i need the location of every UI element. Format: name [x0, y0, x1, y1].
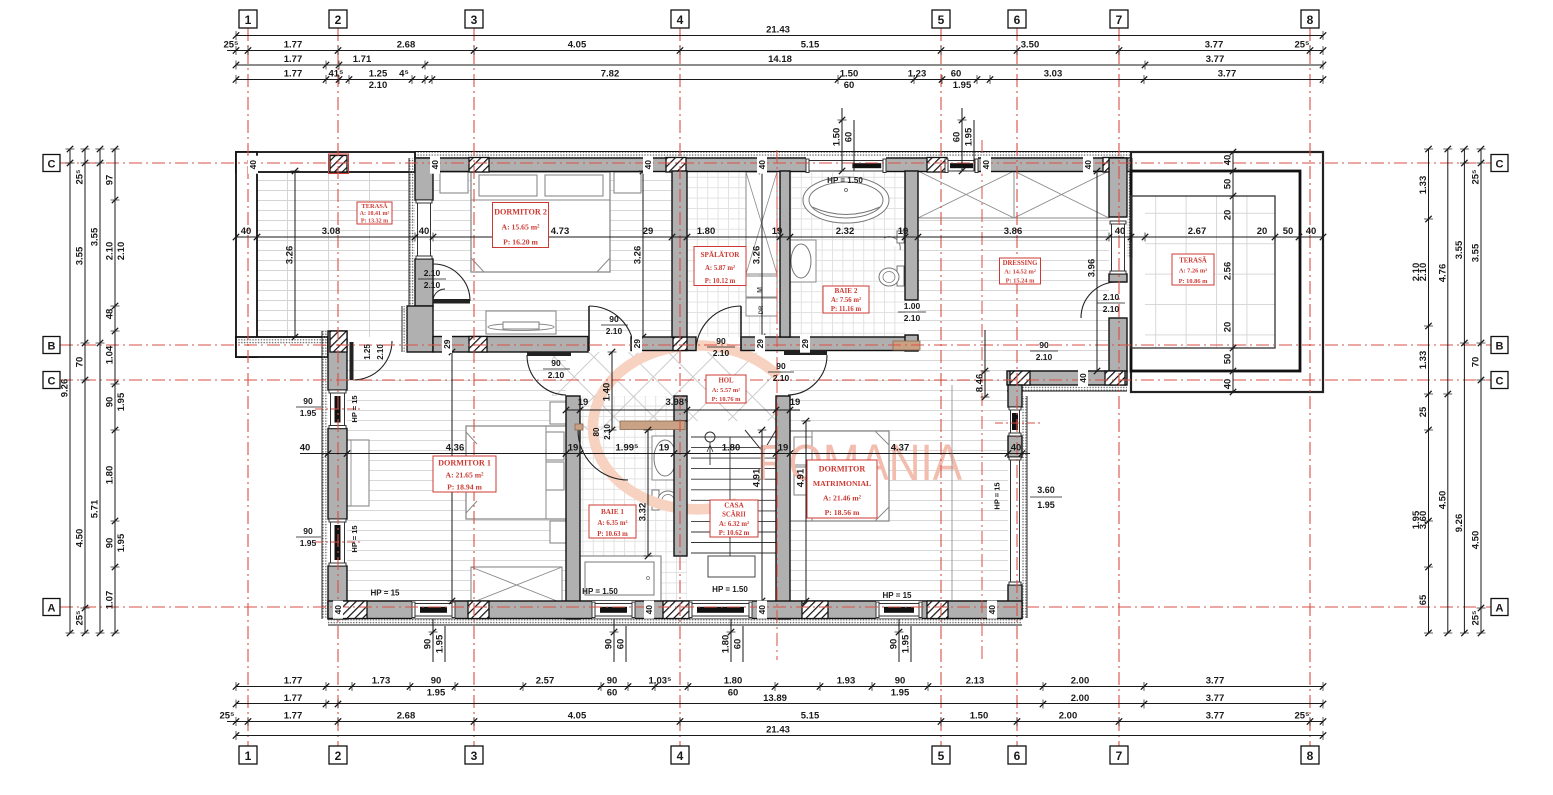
svg-text:1.03⁵: 1.03⁵ [649, 676, 672, 687]
svg-text:A: 14.52 m²: A: 14.52 m² [1004, 269, 1036, 276]
svg-text:2.10: 2.10 [116, 242, 127, 261]
svg-text:6: 6 [1014, 749, 1021, 763]
svg-text:40: 40 [1011, 443, 1022, 454]
svg-text:2.00: 2.00 [1059, 711, 1078, 722]
svg-text:40: 40 [1115, 226, 1126, 237]
svg-text:2.10: 2.10 [548, 370, 565, 380]
svg-text:90: 90 [604, 639, 615, 650]
svg-text:90: 90 [776, 361, 786, 371]
svg-text:90: 90 [105, 397, 116, 408]
svg-text:3: 3 [471, 13, 478, 27]
svg-text:P: 10.62 m: P: 10.62 m [719, 530, 750, 537]
svg-text:40: 40 [987, 605, 997, 615]
svg-text:50: 50 [1283, 226, 1294, 237]
svg-text:2.32: 2.32 [836, 226, 855, 237]
svg-text:A: 6.35 m²: A: 6.35 m² [598, 520, 628, 527]
svg-text:1.95: 1.95 [300, 408, 317, 418]
svg-text:60: 60 [844, 80, 855, 91]
svg-text:2.10: 2.10 [1036, 352, 1053, 362]
svg-text:A: 15.65 m²: A: 15.65 m² [502, 223, 541, 232]
svg-text:4⁵: 4⁵ [399, 69, 409, 80]
svg-text:40: 40 [241, 226, 252, 237]
svg-text:2.10: 2.10 [713, 348, 730, 358]
svg-text:9.26: 9.26 [1454, 514, 1465, 533]
svg-text:1.77: 1.77 [284, 711, 303, 722]
svg-text:90: 90 [895, 676, 906, 687]
svg-text:90: 90 [607, 676, 618, 687]
svg-text:90: 90 [716, 336, 726, 346]
svg-text:1.23: 1.23 [908, 69, 927, 80]
svg-text:A: 5.57 m²: A: 5.57 m² [712, 387, 740, 394]
svg-text:3.26: 3.26 [285, 246, 296, 265]
svg-text:60: 60 [728, 688, 739, 699]
svg-text:3.50: 3.50 [1021, 40, 1040, 51]
svg-text:90: 90 [303, 396, 313, 406]
svg-text:4.73: 4.73 [551, 226, 570, 237]
svg-text:90: 90 [423, 639, 434, 650]
svg-text:40: 40 [419, 226, 430, 237]
svg-text:60: 60 [733, 639, 744, 650]
svg-text:40: 40 [644, 605, 654, 615]
svg-text:SPĂLĂTOR: SPĂLĂTOR [700, 249, 740, 259]
svg-text:25⁵: 25⁵ [219, 711, 234, 722]
svg-text:MATRIMONIAL: MATRIMONIAL [813, 479, 871, 488]
svg-text:50: 50 [1223, 354, 1234, 365]
svg-text:3.55: 3.55 [1454, 240, 1465, 259]
svg-text:1.04: 1.04 [105, 345, 116, 364]
svg-text:90: 90 [889, 639, 900, 650]
svg-text:4: 4 [677, 749, 684, 763]
svg-text:1.95: 1.95 [1037, 500, 1055, 510]
svg-text:90: 90 [551, 358, 561, 368]
svg-text:80: 80 [592, 427, 601, 436]
svg-text:40: 40 [1223, 379, 1234, 390]
svg-text:3.77: 3.77 [1206, 676, 1225, 687]
svg-text:90: 90 [303, 526, 313, 536]
svg-text:3.96: 3.96 [1087, 259, 1098, 278]
svg-text:A: 7.26 m²: A: 7.26 m² [1179, 268, 1207, 275]
svg-text:1.73: 1.73 [372, 676, 391, 687]
svg-text:1.95: 1.95 [1411, 510, 1422, 529]
svg-text:DORMITOR 2: DORMITOR 2 [494, 208, 547, 217]
svg-text:20: 20 [1257, 226, 1268, 237]
svg-text:P: 13.32 m: P: 13.32 m [361, 219, 388, 225]
svg-text:20: 20 [1223, 322, 1234, 333]
svg-text:1.80: 1.80 [697, 226, 716, 237]
svg-text:1.07: 1.07 [105, 591, 116, 610]
svg-text:A: 21.65 m²: A: 21.65 m² [446, 471, 485, 480]
svg-text:40: 40 [333, 605, 343, 615]
svg-text:1.71: 1.71 [353, 54, 372, 65]
svg-text:DORMITOR: DORMITOR [819, 465, 866, 474]
svg-text:3.77: 3.77 [1205, 40, 1224, 51]
svg-text:1.99⁵: 1.99⁵ [616, 443, 639, 454]
svg-text:19: 19 [659, 443, 670, 454]
svg-text:1.40: 1.40 [602, 383, 613, 402]
svg-text:1.00: 1.00 [904, 301, 921, 311]
svg-text:40: 40 [1083, 160, 1093, 170]
svg-text:1.77: 1.77 [284, 693, 303, 704]
svg-text:BAIE 2: BAIE 2 [835, 287, 858, 295]
svg-text:A: 10.41 m²: A: 10.41 m² [360, 211, 390, 217]
svg-text:A: 6.32 m²: A: 6.32 m² [719, 521, 749, 528]
svg-text:HP = 15: HP = 15 [371, 589, 401, 598]
svg-text:4.50: 4.50 [75, 529, 86, 548]
svg-text:C: C [1496, 376, 1504, 388]
svg-text:8: 8 [1307, 749, 1314, 763]
svg-text:P: 10.76 m: P: 10.76 m [712, 396, 742, 403]
svg-text:8.46: 8.46 [975, 374, 986, 393]
svg-text:4: 4 [677, 13, 684, 27]
svg-text:1.80: 1.80 [722, 443, 741, 454]
svg-text:1.95: 1.95 [116, 392, 127, 411]
svg-text:25⁵: 25⁵ [75, 610, 86, 625]
svg-text:19: 19 [778, 443, 789, 454]
svg-text:3.55: 3.55 [90, 227, 101, 246]
svg-text:40: 40 [981, 160, 991, 170]
svg-text:40: 40 [300, 443, 311, 454]
svg-text:25⁵: 25⁵ [223, 40, 238, 51]
svg-text:5.15: 5.15 [801, 711, 820, 722]
svg-text:3.77: 3.77 [1218, 69, 1237, 80]
svg-text:25: 25 [1418, 406, 1429, 417]
svg-text:2.10: 2.10 [904, 313, 921, 323]
svg-text:2.56: 2.56 [1223, 262, 1234, 281]
svg-text:70: 70 [75, 357, 86, 368]
svg-text:1.77: 1.77 [284, 69, 303, 80]
svg-text:2.68: 2.68 [397, 711, 416, 722]
svg-text:4.91: 4.91 [752, 468, 763, 487]
svg-text:13.89: 13.89 [763, 693, 787, 704]
svg-text:6: 6 [1014, 13, 1021, 27]
svg-text:3.60: 3.60 [1037, 485, 1055, 495]
svg-text:7.82: 7.82 [601, 69, 620, 80]
svg-text:40: 40 [1306, 226, 1317, 237]
svg-text:3.26: 3.26 [752, 246, 763, 265]
svg-text:97: 97 [105, 175, 116, 186]
svg-text:25⁵: 25⁵ [75, 169, 86, 184]
svg-text:1.25: 1.25 [369, 69, 388, 80]
svg-text:29: 29 [643, 226, 654, 237]
svg-text:90: 90 [431, 676, 442, 687]
svg-text:5: 5 [938, 13, 945, 27]
svg-text:19: 19 [578, 397, 589, 408]
svg-text:CASA: CASA [724, 501, 744, 509]
svg-text:5.15: 5.15 [801, 40, 820, 51]
svg-text:70: 70 [1471, 357, 1482, 368]
svg-text:2.10: 2.10 [369, 80, 388, 91]
svg-text:4.37: 4.37 [891, 443, 910, 454]
svg-text:P: 10.63 m: P: 10.63 m [597, 531, 628, 538]
svg-text:A: 7.56 m²: A: 7.56 m² [831, 297, 861, 304]
svg-text:21.43: 21.43 [766, 25, 790, 36]
svg-text:4.50: 4.50 [1471, 531, 1482, 550]
svg-text:1.95: 1.95 [901, 634, 912, 653]
svg-text:60: 60 [607, 688, 618, 699]
svg-text:HP = 15: HP = 15 [350, 395, 359, 422]
svg-text:1.33: 1.33 [1418, 351, 1429, 370]
svg-text:A: 5.87 m²: A: 5.87 m² [705, 265, 735, 272]
svg-text:1: 1 [245, 13, 252, 27]
svg-text:7: 7 [1116, 749, 1123, 763]
svg-text:SCĂRII: SCĂRII [722, 511, 746, 519]
svg-text:1.33: 1.33 [1418, 176, 1429, 195]
svg-text:40: 40 [248, 160, 258, 170]
svg-text:P: 11.16 m: P: 11.16 m [831, 306, 862, 313]
svg-text:3.77: 3.77 [1206, 54, 1225, 65]
svg-text:1.77: 1.77 [284, 54, 303, 65]
svg-text:P: 18.56 m: P: 18.56 m [825, 508, 860, 517]
svg-text:2: 2 [335, 13, 342, 27]
svg-text:TERASĂ: TERASĂ [1179, 256, 1207, 264]
svg-text:4.91: 4.91 [796, 468, 807, 487]
svg-text:P: 15.24 m: P: 15.24 m [1006, 277, 1036, 284]
svg-text:19: 19 [568, 443, 579, 454]
svg-text:48: 48 [105, 309, 116, 320]
svg-text:1.50: 1.50 [970, 711, 989, 722]
svg-text:3: 3 [471, 749, 478, 763]
svg-text:5: 5 [938, 749, 945, 763]
svg-text:2.68: 2.68 [397, 40, 416, 51]
svg-text:9.26: 9.26 [60, 379, 71, 398]
svg-text:DRESSING: DRESSING [1003, 260, 1038, 267]
svg-text:HOL: HOL [718, 378, 734, 385]
svg-text:2.67: 2.67 [1188, 226, 1207, 237]
svg-text:2.13: 2.13 [966, 676, 985, 687]
svg-text:2.10: 2.10 [105, 242, 116, 261]
svg-text:2.10: 2.10 [773, 373, 790, 383]
svg-text:60: 60 [951, 69, 962, 80]
svg-text:29: 29 [755, 339, 765, 349]
svg-text:2.10: 2.10 [1103, 292, 1120, 302]
svg-text:P: 10.12 m: P: 10.12 m [705, 278, 736, 285]
svg-text:20: 20 [1223, 210, 1234, 221]
svg-text:C: C [1496, 159, 1504, 171]
svg-text:1.95: 1.95 [953, 80, 972, 91]
svg-text:25⁵: 25⁵ [1294, 711, 1309, 722]
svg-text:60: 60 [844, 132, 855, 143]
svg-text:A: A [48, 603, 56, 615]
svg-text:2.10: 2.10 [424, 268, 441, 278]
svg-text:7: 7 [1116, 13, 1123, 27]
svg-text:1.25: 1.25 [363, 344, 372, 360]
svg-text:3.86: 3.86 [1004, 226, 1023, 237]
svg-text:90: 90 [609, 314, 619, 324]
svg-text:60: 60 [952, 132, 963, 143]
svg-text:2.10: 2.10 [1103, 304, 1120, 314]
svg-text:40: 40 [1078, 373, 1088, 383]
svg-text:1.80: 1.80 [105, 466, 116, 485]
svg-text:29: 29 [800, 339, 810, 349]
svg-text:40: 40 [1223, 155, 1234, 166]
svg-text:3.98⁵: 3.98⁵ [666, 397, 689, 408]
svg-text:3.55: 3.55 [1471, 243, 1482, 262]
svg-text:90: 90 [1039, 340, 1049, 350]
svg-text:3.08: 3.08 [322, 226, 341, 237]
svg-text:1.95: 1.95 [427, 688, 446, 699]
svg-text:29: 29 [632, 339, 642, 349]
svg-text:3.26: 3.26 [633, 246, 644, 265]
svg-text:25⁵: 25⁵ [1471, 169, 1482, 184]
svg-text:P: 16.20 m: P: 16.20 m [503, 238, 538, 247]
svg-text:HP = 15: HP = 15 [883, 591, 913, 600]
svg-text:60: 60 [616, 639, 627, 650]
svg-text:3.77: 3.77 [1206, 693, 1225, 704]
svg-text:4.50: 4.50 [1437, 491, 1448, 510]
svg-text:1.95: 1.95 [300, 538, 317, 548]
svg-text:3.32: 3.32 [638, 503, 649, 522]
svg-text:M: M [757, 287, 764, 293]
svg-text:4.36: 4.36 [446, 443, 465, 454]
svg-text:HP = 1.50: HP = 1.50 [827, 176, 863, 185]
svg-text:40: 40 [757, 160, 767, 170]
svg-text:A: A [1496, 603, 1504, 615]
svg-text:1.95: 1.95 [435, 634, 446, 653]
svg-text:HP = 1.50: HP = 1.50 [582, 587, 618, 596]
svg-text:3.77: 3.77 [1206, 711, 1225, 722]
svg-text:25⁵: 25⁵ [1294, 40, 1309, 51]
svg-text:1.50: 1.50 [832, 128, 843, 147]
svg-text:1: 1 [245, 749, 252, 763]
svg-text:1.95: 1.95 [891, 688, 910, 699]
svg-text:2.10: 2.10 [1411, 263, 1422, 282]
svg-text:5.71: 5.71 [90, 499, 101, 518]
svg-text:4.05: 4.05 [568, 711, 587, 722]
svg-text:HP = 15: HP = 15 [350, 525, 359, 552]
svg-text:50: 50 [1223, 179, 1234, 190]
svg-text:1.95: 1.95 [116, 533, 127, 552]
svg-text:65: 65 [1418, 594, 1429, 605]
svg-text:25⁵: 25⁵ [1471, 610, 1482, 625]
svg-text:21.43: 21.43 [766, 725, 790, 736]
svg-text:C: C [48, 376, 56, 388]
svg-text:8: 8 [1307, 13, 1314, 27]
svg-text:P: 10.86 m: P: 10.86 m [1179, 278, 1209, 285]
svg-text:2.10: 2.10 [606, 326, 623, 336]
svg-text:HP = 1.50: HP = 1.50 [712, 585, 748, 594]
svg-text:2.57: 2.57 [536, 676, 555, 687]
svg-text:2.00: 2.00 [1071, 676, 1090, 687]
svg-text:B: B [1496, 341, 1504, 353]
svg-text:2.00: 2.00 [1071, 693, 1090, 704]
svg-text:29: 29 [442, 339, 452, 349]
svg-text:4.05: 4.05 [568, 40, 587, 51]
svg-text:3.55: 3.55 [75, 246, 86, 265]
svg-text:TERASĂ: TERASĂ [362, 202, 388, 210]
svg-text:P: 18.94 m: P: 18.94 m [447, 483, 482, 492]
svg-text:BAIE 1: BAIE 1 [601, 508, 624, 516]
svg-text:2.10: 2.10 [376, 344, 385, 360]
svg-text:1.77: 1.77 [284, 40, 303, 51]
svg-text:C: C [48, 159, 56, 171]
svg-text:1.93: 1.93 [837, 676, 856, 687]
svg-text:19: 19 [790, 397, 801, 408]
svg-text:1.77: 1.77 [284, 676, 303, 687]
svg-text:19: 19 [898, 226, 909, 237]
svg-text:B: B [48, 341, 56, 353]
svg-text:A: 21.46 m²: A: 21.46 m² [823, 494, 862, 503]
svg-text:1.80: 1.80 [721, 635, 732, 654]
svg-text:1.50: 1.50 [840, 69, 859, 80]
svg-text:40: 40 [757, 605, 767, 615]
svg-text:1.80: 1.80 [724, 676, 743, 687]
svg-text:40: 40 [430, 160, 440, 170]
svg-text:41⁵: 41⁵ [328, 69, 343, 80]
svg-text:DORMITOR 1: DORMITOR 1 [438, 459, 491, 468]
svg-text:2.10: 2.10 [424, 280, 441, 290]
svg-text:40: 40 [643, 160, 653, 170]
svg-text:90: 90 [105, 538, 116, 549]
svg-text:19: 19 [772, 226, 783, 237]
svg-text:2: 2 [335, 749, 342, 763]
svg-text:1.95: 1.95 [964, 127, 975, 146]
svg-text:HP = 15: HP = 15 [993, 482, 1002, 509]
svg-text:4.76: 4.76 [1437, 264, 1448, 283]
svg-text:3.03: 3.03 [1044, 69, 1063, 80]
svg-text:2.10: 2.10 [603, 424, 612, 440]
svg-text:14.18: 14.18 [768, 54, 792, 65]
